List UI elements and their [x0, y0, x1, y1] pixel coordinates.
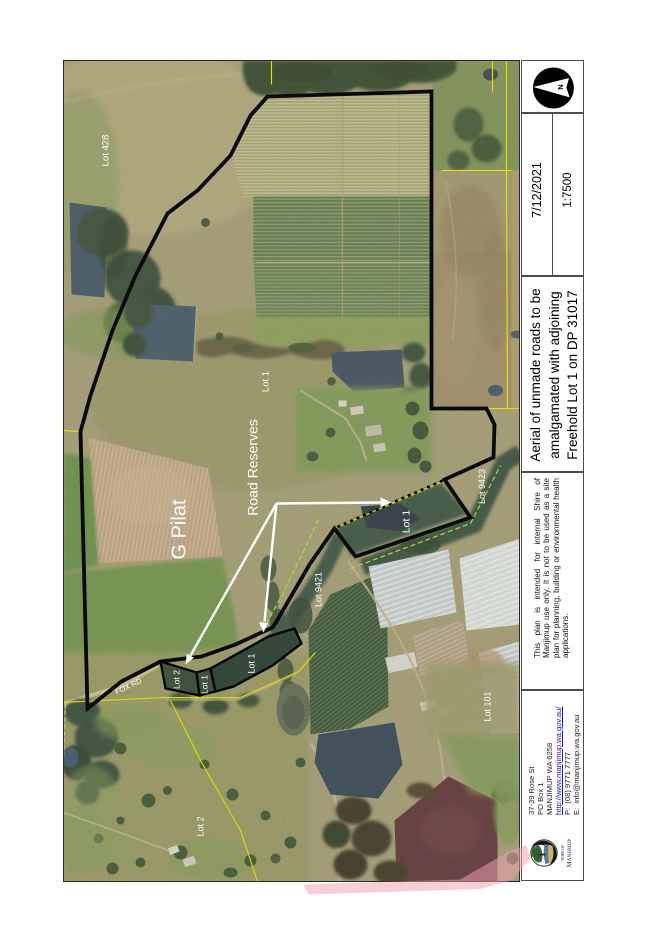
- svg-text:G Pilat: G Pilat: [169, 499, 191, 559]
- svg-text:Lot 1: Lot 1: [200, 675, 210, 694]
- svg-text:N: N: [556, 84, 565, 89]
- svg-text:SHIRE OF: SHIRE OF: [561, 845, 565, 861]
- svg-text:Lot 9423: Lot 9423: [477, 469, 487, 504]
- svg-text:Lot 101: Lot 101: [483, 691, 493, 721]
- svg-text:MANJIMUP: MANJIMUP: [566, 839, 573, 867]
- svg-text:Lot 1: Lot 1: [247, 653, 257, 673]
- svg-text:Lot 1: Lot 1: [261, 371, 272, 392]
- svg-text:Lot 9421: Lot 9421: [314, 572, 324, 607]
- svg-text:Lot 2: Lot 2: [196, 816, 206, 836]
- svg-text:Lot 2: Lot 2: [172, 670, 182, 689]
- svg-text:Lot 428: Lot 428: [101, 135, 112, 167]
- svg-text:Road Reserves: Road Reserves: [245, 419, 261, 516]
- svg-text:Lot 1: Lot 1: [401, 510, 413, 534]
